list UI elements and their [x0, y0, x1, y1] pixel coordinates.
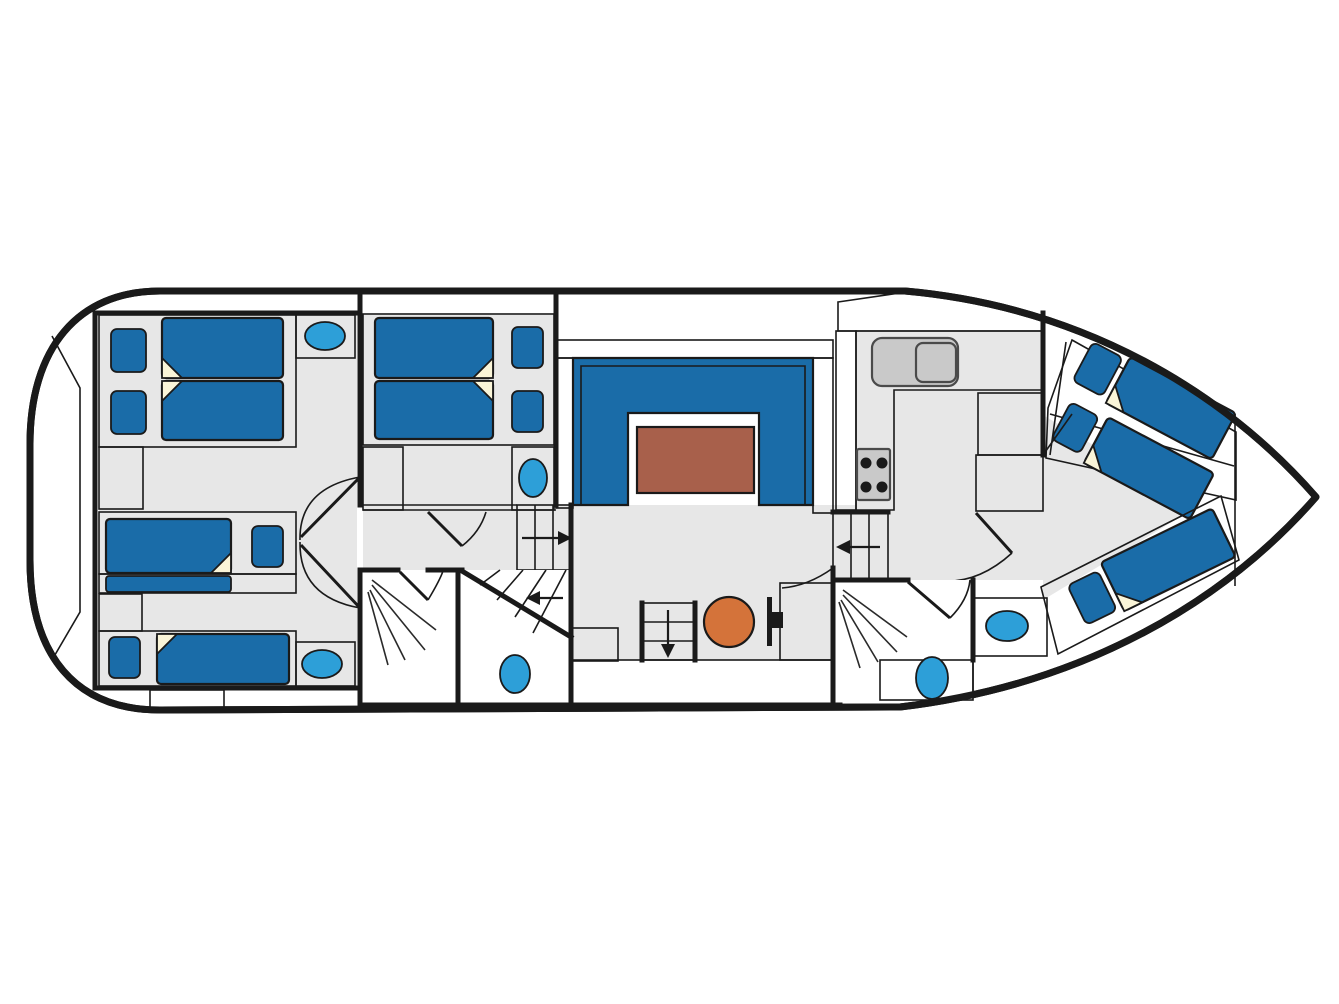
- burner-icon: [861, 458, 872, 469]
- saloon-table: [637, 427, 754, 493]
- pullout-mattress: [106, 576, 231, 592]
- toilet-icon: [500, 655, 530, 693]
- helm-console-icon: [767, 597, 772, 646]
- deck-plan-canvas: [0, 0, 1339, 1004]
- bow-passage-floor: [833, 505, 1043, 580]
- washbasin-icon: [305, 322, 345, 350]
- bed-mattress: [162, 318, 283, 378]
- sofa-armrest-trim: [813, 358, 833, 513]
- deck-plan: [0, 0, 1339, 1004]
- helm-seat-icon: [704, 597, 754, 647]
- washbasin-icon: [986, 611, 1028, 641]
- bed-mattress: [106, 519, 231, 573]
- side-locker: [571, 660, 833, 705]
- pillow: [109, 637, 140, 678]
- pillow: [111, 391, 146, 434]
- pillow: [252, 526, 283, 567]
- pillow: [111, 329, 146, 372]
- bed-mattress: [375, 318, 493, 378]
- aft-shower-room: [363, 570, 458, 703]
- washbasin-icon: [519, 459, 547, 497]
- bed-mattress: [375, 381, 493, 439]
- burner-icon: [877, 458, 888, 469]
- stove-icon: [857, 449, 890, 500]
- washbasin-icon: [302, 650, 342, 678]
- burner-icon: [861, 482, 872, 493]
- stern-transom-line: [52, 336, 80, 660]
- pillow: [512, 391, 543, 432]
- burner-icon: [877, 482, 888, 493]
- bed-mattress: [157, 634, 289, 684]
- toilet-icon: [916, 657, 948, 699]
- sofa-backrest-trim: [556, 340, 833, 358]
- pillow: [512, 327, 543, 368]
- sink-bowl-icon: [916, 343, 956, 382]
- galley-cabinet: [836, 331, 856, 510]
- sofa-armrest-trim: [556, 358, 573, 508]
- bed-mattress: [162, 381, 283, 440]
- helm-knob-icon: [772, 612, 783, 628]
